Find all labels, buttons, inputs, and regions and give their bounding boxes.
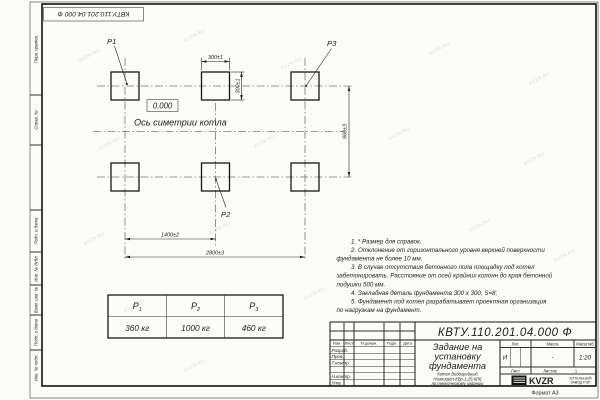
title-line-2: установку: [433, 352, 482, 362]
leader-p2: P2: [215, 179, 231, 220]
watermark: KVZR.RU: [183, 358, 206, 373]
weights-header-p2: P2: [191, 301, 200, 313]
col-header-podp: Подп.: [387, 341, 398, 346]
row-label-nkontr: Н.контр.: [332, 374, 351, 379]
watermark: KVZR.RU: [183, 28, 206, 43]
dim-row-spacing: 960±3: [343, 86, 351, 177]
weights-value-p2: 1000 кг: [181, 323, 210, 333]
title-line-3: фундамента: [429, 361, 486, 371]
kvzr-logo-text: KVZR: [529, 376, 554, 386]
notes: 1. * Размер для справок. 2. Отклонение о…: [336, 238, 553, 314]
note-line: по нагрузкам на фундамент.: [337, 307, 422, 314]
watermark: KVZR.RU: [208, 221, 231, 236]
org-line-2: ЗАВОД РЭП: [570, 381, 591, 385]
sidebar-label-inv-dubl: Инв. № дубл.: [34, 255, 39, 281]
mass-value: -: [551, 354, 553, 361]
lit-label: Лит.: [512, 342, 520, 347]
kvzr-logo: KVZR КОТЕЛЬНЫЙ ЗАВОД РЭП: [512, 376, 592, 387]
sidebar-label-inv-podl: Инв. № подл.: [34, 355, 39, 382]
gost-drawing: KVZR.RU KVZR.RU KVZR.RU KVZR.RU KVZR.RU …: [0, 0, 600, 400]
sheets-value: 1: [575, 368, 578, 373]
weights-value-p3: 460 кг: [242, 323, 266, 333]
sheet-label: Лист: [511, 368, 520, 373]
format-label: Формат А3: [531, 391, 558, 397]
dim-text-total-span: 2800±3: [205, 250, 224, 256]
col-header-list: Лист: [345, 341, 354, 346]
row-label-razrab: Разраб.: [332, 348, 349, 353]
watermark: KVZR.RU: [303, 286, 326, 301]
row-label-tkontr: Т.контр.: [332, 361, 351, 366]
drawing-sheet: KVZR.RU KVZR.RU KVZR.RU KVZR.RU KVZR.RU …: [0, 0, 600, 400]
pad-label-p2: P2: [221, 210, 231, 219]
scale-value: 1:20: [579, 355, 592, 362]
watermark: KVZR.RU: [523, 151, 546, 166]
watermark: KVZR.RU: [280, 56, 303, 71]
watermark: KVZR.RU: [528, 71, 551, 86]
note-line: 3. В случае отсутствия бетонного пола пл…: [351, 264, 535, 271]
watermark: KVZR.RU: [553, 248, 576, 263]
leader-p3: P3: [305, 39, 337, 87]
dim-text-pad-width: 300±1: [208, 55, 223, 61]
dim-text-pad-height: 300±1: [236, 79, 242, 94]
note-line: забетонировать. Расстояние от осей крайн…: [336, 273, 553, 280]
sidebar-label-sprav-no: Справ. №: [34, 110, 39, 130]
sidebar-label-podp-data-2: Подп. и дата: [34, 318, 39, 346]
scale-label: Масштаб: [576, 342, 594, 347]
watermark: KVZR.RU: [78, 48, 101, 63]
mass-label: Масса: [546, 342, 559, 347]
note-line: 4. Закладная деталь фундамента 300 х 300…: [351, 290, 497, 297]
watermark: KVZR.RU: [468, 218, 491, 233]
row-label-prov: Пров.: [332, 354, 344, 359]
col-header-izm: Изм.: [333, 341, 342, 346]
watermark: KVZR.RU: [428, 41, 451, 56]
dim-text-row-spacing: 960±3: [343, 124, 349, 139]
note-line: 1. * Размер для справок.: [351, 238, 422, 245]
axis-of-symmetry-label: Ось симетрии котла: [134, 118, 227, 128]
sheets-label: Листов: [543, 368, 556, 373]
dim-total-span: 2800±3: [125, 250, 305, 258]
weights-header-p3: P3: [249, 301, 259, 313]
centerlines: [93, 58, 352, 261]
watermark: KVZR.RU: [83, 231, 106, 246]
note-line: подушки 500 мм.: [337, 281, 386, 288]
watermark: KVZR.RU: [388, 126, 411, 141]
doc-number-stamp: КВТУ.110.201.04.000 Ф: [57, 10, 130, 17]
pad-label-p3: P3: [327, 39, 337, 48]
row-label-utv: Утв.: [332, 380, 342, 385]
sidebar-label-podp-data-1: Подп. и дата: [34, 217, 39, 245]
watermark-layer: KVZR.RU KVZR.RU KVZR.RU KVZR.RU KVZR.RU …: [78, 28, 576, 373]
subtitle-line-3: по техническому заданию: [432, 381, 485, 386]
dim-pad-width: 300±1: [202, 55, 230, 70]
col-header-doc: N докум.: [361, 341, 377, 346]
lit-value: И: [503, 355, 508, 362]
weights-table: P1 P2 P3 360 кг 1000 кг 460 кг: [108, 295, 283, 338]
watermark: KVZR.RU: [253, 134, 276, 149]
elevation-value: 0.000: [153, 102, 173, 111]
dim-col-spacing: 1400±2: [125, 232, 216, 240]
col-header-data: Дата: [403, 341, 413, 346]
dim-text-col-spacing: 1400±2: [161, 232, 179, 238]
weights-value-p1: 360 кг: [125, 323, 149, 333]
sidebar-label-vzam-inv: Взам. инв. №: [34, 286, 39, 313]
pad-label-p1: P1: [107, 37, 116, 46]
sidebar-label-perv-primen: Перв. примен.: [34, 35, 39, 64]
note-line: 2. Отклонение от горизонтального уровня …: [350, 247, 545, 254]
watermark: KVZR.RU: [98, 136, 121, 151]
title-block-doc-number: КВТУ.110.201.04.000 Ф: [438, 327, 572, 339]
note-line: фундамента не более 10 мм.: [337, 256, 423, 263]
note-line: 5. Фундамент под котел разрабатывает про…: [351, 299, 547, 306]
title-line-1: Задание на: [433, 342, 483, 352]
